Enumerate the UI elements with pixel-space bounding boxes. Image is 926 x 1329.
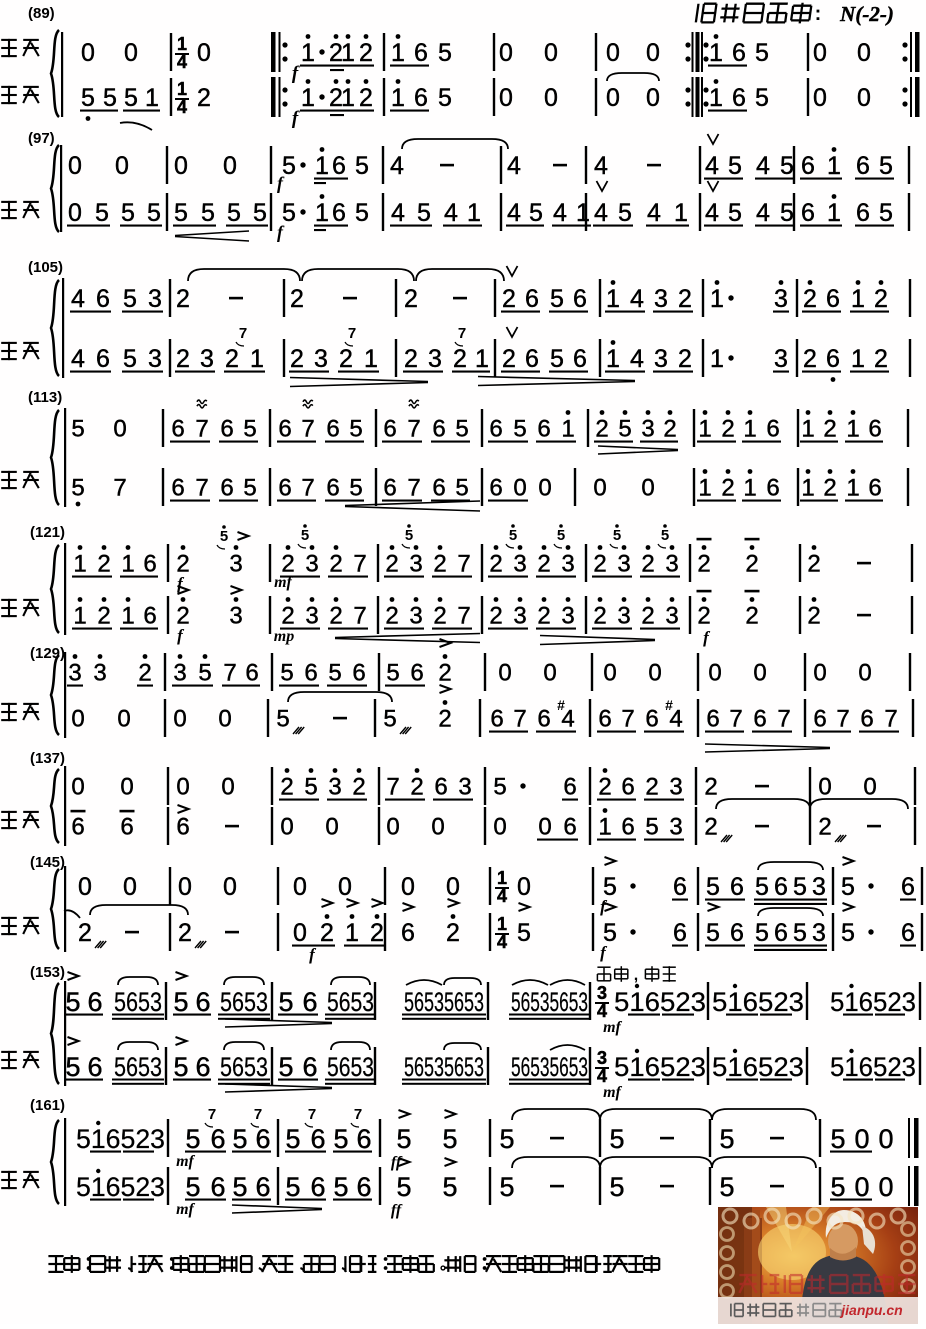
svg-text:5: 5: [719, 1172, 734, 1202]
svg-text:6: 6: [732, 39, 746, 67]
svg-text:2: 2: [823, 475, 836, 502]
svg-text:5: 5: [328, 660, 341, 687]
svg-text:2: 2: [339, 345, 353, 373]
svg-text:2: 2: [537, 603, 550, 630]
svg-text:5: 5: [618, 416, 631, 443]
svg-text:6: 6: [563, 774, 576, 801]
svg-text:6: 6: [489, 416, 502, 443]
svg-text:6: 6: [730, 919, 744, 947]
svg-text:5: 5: [550, 345, 564, 373]
svg-text:5: 5: [618, 199, 632, 227]
svg-text:1: 1: [846, 416, 859, 443]
svg-text:7: 7: [353, 551, 366, 578]
svg-text:1: 1: [561, 416, 574, 443]
svg-text:5: 5: [301, 527, 309, 544]
svg-text:5: 5: [383, 706, 396, 733]
svg-text:4: 4: [594, 199, 608, 227]
svg-text:3: 3: [654, 345, 668, 373]
svg-text:5: 5: [793, 873, 807, 901]
svg-text:6: 6: [304, 660, 317, 687]
svg-text:,: ,: [634, 967, 638, 984]
svg-text:4: 4: [597, 1001, 607, 1021]
svg-text:5: 5: [780, 199, 794, 227]
svg-text:6: 6: [278, 475, 291, 502]
svg-text:6: 6: [410, 660, 423, 687]
svg-text:6: 6: [645, 706, 658, 733]
svg-text:6: 6: [432, 416, 445, 443]
svg-text:3: 3: [513, 551, 526, 578]
svg-text:ff: ff: [391, 1202, 403, 1219]
svg-text:5: 5: [243, 416, 256, 443]
svg-text:6: 6: [255, 1124, 270, 1154]
svg-text:0: 0: [325, 814, 338, 841]
svg-text:6: 6: [302, 987, 317, 1017]
svg-text:6: 6: [310, 1124, 325, 1154]
svg-text:5: 5: [396, 1124, 411, 1154]
svg-text:516523: 516523: [614, 1052, 706, 1082]
svg-text:6: 6: [563, 814, 576, 841]
svg-text:5: 5: [174, 199, 188, 227]
svg-text:5: 5: [173, 1052, 188, 1082]
svg-text:1: 1: [73, 551, 86, 578]
svg-text:1: 1: [827, 152, 841, 180]
svg-text:5: 5: [557, 527, 565, 544]
svg-text:5653: 5653: [220, 1052, 268, 1082]
svg-text:3: 3: [229, 603, 242, 630]
svg-text:2: 2: [438, 706, 451, 733]
svg-text:(113): (113): [28, 389, 62, 406]
svg-text:0: 0: [813, 39, 827, 67]
svg-text:1: 1: [801, 475, 814, 502]
svg-text:5: 5: [609, 1172, 624, 1202]
svg-text:1: 1: [709, 84, 723, 112]
svg-text:0: 0: [641, 475, 654, 502]
svg-text:1: 1: [743, 475, 756, 502]
svg-text:2: 2: [352, 774, 365, 801]
svg-text:5: 5: [830, 1172, 845, 1202]
svg-text:0: 0: [708, 660, 721, 687]
svg-text:5: 5: [280, 660, 293, 687]
svg-text:3: 3: [148, 345, 162, 373]
svg-text:1: 1: [121, 603, 134, 630]
svg-text:6: 6: [901, 919, 915, 947]
svg-text:5: 5: [95, 199, 109, 227]
svg-text:4: 4: [553, 199, 567, 227]
svg-text:5653: 5653: [220, 987, 268, 1017]
svg-text:2: 2: [807, 551, 820, 578]
svg-text:6: 6: [143, 551, 156, 578]
svg-text:5: 5: [278, 1052, 293, 1082]
svg-text:3: 3: [93, 660, 106, 687]
svg-text:2: 2: [489, 603, 502, 630]
svg-text:7: 7: [254, 1106, 262, 1123]
svg-text:5: 5: [499, 1172, 514, 1202]
svg-text:1: 1: [606, 285, 620, 313]
svg-text:2: 2: [595, 416, 608, 443]
svg-text:4: 4: [705, 199, 719, 227]
svg-text:3: 3: [669, 814, 682, 841]
svg-text:56535653: 56535653: [511, 1052, 588, 1082]
svg-text:7: 7: [407, 475, 420, 502]
svg-text:5: 5: [355, 199, 369, 227]
svg-text:6: 6: [490, 706, 503, 733]
svg-text:4: 4: [507, 199, 521, 227]
svg-text:516523: 516523: [76, 1124, 165, 1154]
svg-text:5: 5: [333, 1172, 348, 1202]
svg-text:5653: 5653: [327, 987, 374, 1017]
svg-text:1: 1: [851, 285, 865, 313]
svg-text:4: 4: [561, 706, 574, 733]
svg-text:0: 0: [878, 1172, 893, 1202]
svg-text:1: 1: [341, 84, 355, 112]
svg-text:7: 7: [836, 706, 849, 733]
svg-text:(105): (105): [28, 259, 63, 276]
svg-text:1: 1: [497, 868, 507, 888]
svg-text:0: 0: [544, 39, 558, 67]
svg-text:6: 6: [414, 84, 428, 112]
svg-text:3: 3: [597, 983, 607, 1003]
svg-text:2: 2: [502, 285, 516, 313]
svg-text:(161): (161): [30, 1097, 65, 1114]
svg-text:5: 5: [755, 873, 769, 901]
svg-text:1: 1: [73, 603, 86, 630]
svg-text:1: 1: [177, 34, 187, 54]
svg-text:6: 6: [774, 919, 788, 947]
svg-text:2: 2: [874, 285, 888, 313]
svg-text:0: 0: [386, 814, 399, 841]
svg-text:4: 4: [647, 199, 661, 227]
svg-text:6: 6: [143, 603, 156, 630]
svg-text:5: 5: [123, 345, 137, 373]
svg-text:2: 2: [818, 814, 831, 841]
svg-text:4: 4: [630, 345, 644, 373]
svg-text:2: 2: [678, 285, 692, 313]
svg-text:2: 2: [290, 285, 304, 313]
svg-text:0: 0: [123, 873, 137, 901]
svg-text:4: 4: [390, 152, 404, 180]
svg-text:5: 5: [405, 527, 413, 544]
svg-text:0: 0: [646, 39, 660, 67]
svg-text:3: 3: [314, 345, 328, 373]
svg-text:2: 2: [641, 551, 654, 578]
svg-text:6: 6: [766, 416, 779, 443]
svg-text:0: 0: [401, 873, 415, 901]
svg-text:2: 2: [197, 84, 211, 112]
svg-text:5: 5: [81, 84, 95, 112]
svg-text:0: 0: [338, 873, 352, 901]
svg-text:0: 0: [113, 416, 126, 443]
svg-text:5: 5: [349, 475, 362, 502]
svg-text:6: 6: [220, 416, 233, 443]
svg-text:6: 6: [573, 345, 587, 373]
svg-text:5: 5: [793, 919, 807, 947]
svg-text:1: 1: [606, 345, 620, 373]
svg-text:7: 7: [407, 416, 420, 443]
svg-text:0: 0: [538, 814, 551, 841]
svg-text:5: 5: [396, 1172, 411, 1202]
svg-text:0: 0: [538, 475, 551, 502]
svg-text:2: 2: [404, 285, 418, 313]
svg-text:1: 1: [121, 551, 134, 578]
svg-text:516523: 516523: [712, 1052, 804, 1082]
svg-text:1: 1: [301, 84, 315, 112]
svg-text:5: 5: [755, 919, 769, 947]
svg-text:0: 0: [223, 873, 237, 901]
svg-text:6: 6: [245, 660, 258, 687]
svg-text:5: 5: [645, 814, 658, 841]
svg-text:2: 2: [593, 603, 606, 630]
svg-text:7: 7: [353, 603, 366, 630]
svg-text:56535653: 56535653: [404, 987, 484, 1017]
svg-text:0: 0: [173, 706, 186, 733]
svg-text:0: 0: [446, 873, 460, 901]
svg-text:3: 3: [774, 345, 788, 373]
svg-text:5: 5: [755, 84, 769, 112]
svg-text:7: 7: [386, 774, 399, 801]
svg-text:5: 5: [603, 873, 617, 901]
svg-text:3: 3: [669, 774, 682, 801]
svg-text:0: 0: [498, 660, 511, 687]
svg-text:0: 0: [603, 660, 616, 687]
svg-text:mf: mf: [176, 1201, 195, 1218]
svg-text:5: 5: [124, 84, 138, 112]
svg-text:5: 5: [509, 527, 517, 544]
svg-text:5: 5: [879, 199, 893, 227]
svg-text:5: 5: [227, 199, 241, 227]
svg-text:7: 7: [195, 475, 208, 502]
svg-text:0: 0: [606, 84, 620, 112]
svg-text:6: 6: [673, 919, 687, 947]
svg-text:7: 7: [354, 1106, 362, 1123]
svg-text:4: 4: [71, 345, 85, 373]
svg-text:2: 2: [385, 551, 398, 578]
svg-text:1: 1: [710, 345, 724, 373]
svg-text:4: 4: [497, 932, 507, 952]
svg-text:5: 5: [123, 285, 137, 313]
svg-text:2: 2: [721, 416, 734, 443]
svg-text:mp: mp: [274, 628, 294, 645]
svg-text:6: 6: [195, 1052, 210, 1082]
svg-text:5: 5: [220, 528, 228, 545]
svg-text:5: 5: [499, 1124, 514, 1154]
svg-text:6: 6: [120, 814, 133, 841]
svg-text:2: 2: [359, 39, 373, 67]
svg-text:56535653: 56535653: [511, 987, 588, 1017]
svg-text:7: 7: [513, 706, 526, 733]
svg-text:6: 6: [326, 416, 339, 443]
svg-text:6: 6: [766, 475, 779, 502]
svg-text:2: 2: [410, 774, 423, 801]
svg-text:6: 6: [826, 345, 840, 373]
svg-text:5: 5: [232, 1124, 247, 1154]
svg-text:5: 5: [232, 1172, 247, 1202]
svg-text:5: 5: [613, 527, 621, 544]
svg-text:jianpu.cn: jianpu.cn: [839, 1302, 902, 1318]
svg-text:3: 3: [665, 603, 678, 630]
svg-text:2: 2: [438, 660, 451, 687]
svg-text:1: 1: [846, 475, 859, 502]
svg-text:2: 2: [370, 919, 384, 947]
svg-text:2: 2: [97, 551, 110, 578]
svg-text:6: 6: [195, 987, 210, 1017]
svg-text:4: 4: [756, 199, 770, 227]
svg-text:0: 0: [223, 152, 237, 180]
svg-text:5: 5: [282, 152, 296, 180]
svg-text:2: 2: [537, 551, 550, 578]
svg-text:0: 0: [178, 873, 192, 901]
svg-text:0: 0: [593, 475, 606, 502]
svg-text:(153): (153): [30, 964, 65, 981]
svg-text:2: 2: [329, 603, 342, 630]
svg-text:(89): (89): [28, 5, 55, 22]
svg-text:0: 0: [197, 39, 211, 67]
svg-text:1: 1: [391, 84, 405, 112]
svg-text:6: 6: [171, 416, 184, 443]
svg-text:mf: mf: [176, 1153, 195, 1170]
svg-text:4: 4: [391, 199, 405, 227]
svg-text:5: 5: [355, 152, 369, 180]
svg-text:0: 0: [543, 660, 556, 687]
svg-text:3: 3: [428, 345, 442, 373]
svg-text:2: 2: [320, 919, 334, 947]
svg-text:1: 1: [177, 79, 187, 99]
svg-text:0: 0: [878, 1124, 893, 1154]
svg-text:5: 5: [442, 1124, 457, 1154]
svg-text:1: 1: [709, 39, 723, 67]
svg-text:6: 6: [352, 660, 365, 687]
svg-text:6: 6: [255, 1172, 270, 1202]
svg-text:6: 6: [868, 416, 881, 443]
svg-text:0: 0: [646, 84, 660, 112]
svg-text:7: 7: [308, 1106, 316, 1123]
svg-text:6: 6: [856, 152, 870, 180]
svg-text:2: 2: [176, 285, 190, 313]
svg-text:4: 4: [507, 152, 521, 180]
svg-text:1: 1: [743, 416, 756, 443]
svg-text:5: 5: [719, 1124, 734, 1154]
svg-text:5: 5: [333, 1124, 348, 1154]
svg-text:6: 6: [96, 345, 110, 373]
svg-text:5: 5: [147, 199, 161, 227]
svg-text:5: 5: [173, 987, 188, 1017]
svg-text:5: 5: [455, 475, 468, 502]
svg-text:1: 1: [801, 416, 814, 443]
svg-text:5: 5: [442, 1172, 457, 1202]
svg-text:5: 5: [841, 919, 855, 947]
svg-text:(129): (129): [30, 645, 65, 662]
svg-text:6: 6: [278, 416, 291, 443]
svg-text:6: 6: [868, 475, 881, 502]
svg-text:2: 2: [446, 919, 460, 947]
svg-text:5653: 5653: [114, 1052, 162, 1082]
svg-text:2: 2: [663, 416, 676, 443]
svg-text:0: 0: [174, 152, 188, 180]
svg-text:mf: mf: [603, 1084, 622, 1101]
svg-text:5: 5: [493, 774, 506, 801]
svg-text:2: 2: [329, 551, 342, 578]
svg-text:mf: mf: [603, 1019, 622, 1036]
svg-text:2: 2: [138, 660, 151, 687]
svg-text:5: 5: [438, 39, 452, 67]
svg-text:5: 5: [278, 987, 293, 1017]
svg-text:6: 6: [210, 1172, 225, 1202]
svg-text:6: 6: [801, 152, 815, 180]
svg-text:7: 7: [195, 416, 208, 443]
svg-text:0: 0: [71, 706, 84, 733]
svg-text:6: 6: [856, 199, 870, 227]
svg-text:2: 2: [385, 603, 398, 630]
svg-text:5: 5: [103, 84, 117, 112]
svg-text:3: 3: [68, 660, 81, 687]
svg-text:0: 0: [120, 774, 133, 801]
svg-text:3: 3: [458, 774, 471, 801]
svg-text:516523: 516523: [830, 987, 916, 1017]
svg-text:3: 3: [409, 551, 422, 578]
svg-text:5: 5: [517, 919, 531, 947]
svg-text:0: 0: [176, 774, 189, 801]
svg-text:1: 1: [364, 345, 378, 373]
svg-text:1: 1: [710, 285, 724, 313]
svg-text:2: 2: [176, 603, 189, 630]
svg-text:0: 0: [854, 1172, 869, 1202]
svg-text:(145): (145): [30, 854, 65, 871]
svg-text:3: 3: [305, 551, 318, 578]
svg-text:1: 1: [497, 914, 507, 934]
svg-text:0: 0: [499, 39, 513, 67]
svg-text:5: 5: [841, 873, 855, 901]
svg-text:3: 3: [774, 285, 788, 313]
svg-text:0: 0: [117, 706, 130, 733]
svg-text:5: 5: [276, 706, 289, 733]
svg-text:0: 0: [858, 660, 871, 687]
svg-text:2: 2: [803, 345, 817, 373]
svg-text:4: 4: [444, 199, 458, 227]
svg-text:2: 2: [225, 345, 239, 373]
svg-text:0: 0: [293, 873, 307, 901]
svg-text:2: 2: [803, 285, 817, 313]
svg-text:1: 1: [301, 39, 315, 67]
svg-text:4: 4: [669, 706, 682, 733]
svg-text:6: 6: [813, 706, 826, 733]
svg-text:(97): (97): [28, 130, 55, 147]
svg-text:2: 2: [359, 84, 373, 112]
svg-text:516523: 516523: [76, 1172, 165, 1202]
svg-text:1: 1: [345, 919, 359, 947]
svg-text:2: 2: [704, 814, 717, 841]
svg-text:6: 6: [774, 873, 788, 901]
svg-text:0: 0: [854, 1124, 869, 1154]
svg-text:0: 0: [68, 199, 82, 227]
svg-text:0: 0: [818, 774, 831, 801]
svg-text:2: 2: [290, 345, 304, 373]
svg-text:0: 0: [280, 814, 293, 841]
svg-text:2: 2: [404, 345, 418, 373]
svg-text:6: 6: [434, 774, 447, 801]
svg-text:6: 6: [210, 1124, 225, 1154]
svg-text:0: 0: [68, 152, 82, 180]
svg-text:3: 3: [617, 603, 630, 630]
svg-text:3: 3: [409, 603, 422, 630]
svg-text:2: 2: [97, 603, 110, 630]
svg-text:0: 0: [124, 39, 138, 67]
svg-text:5653: 5653: [114, 987, 162, 1017]
svg-text:0: 0: [606, 39, 620, 67]
svg-text:3: 3: [654, 285, 668, 313]
svg-text:6: 6: [220, 475, 233, 502]
svg-text:4: 4: [630, 285, 644, 313]
svg-text:0: 0: [293, 919, 307, 947]
svg-text:6: 6: [356, 1172, 371, 1202]
